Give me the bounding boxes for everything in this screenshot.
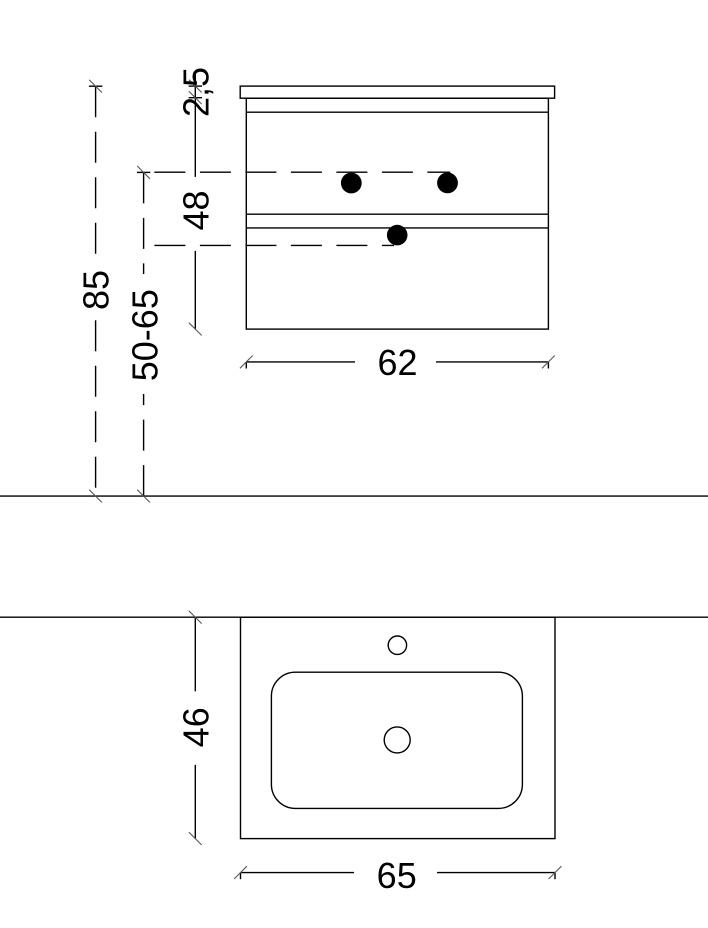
svg-text:50-65: 50-65 [125, 289, 166, 381]
svg-text:85: 85 [76, 270, 117, 310]
svg-text:48: 48 [175, 190, 216, 230]
svg-text:46: 46 [175, 707, 216, 747]
svg-text:62: 62 [377, 342, 417, 383]
svg-text:2,5: 2,5 [175, 67, 216, 117]
svg-text:65: 65 [377, 855, 417, 896]
